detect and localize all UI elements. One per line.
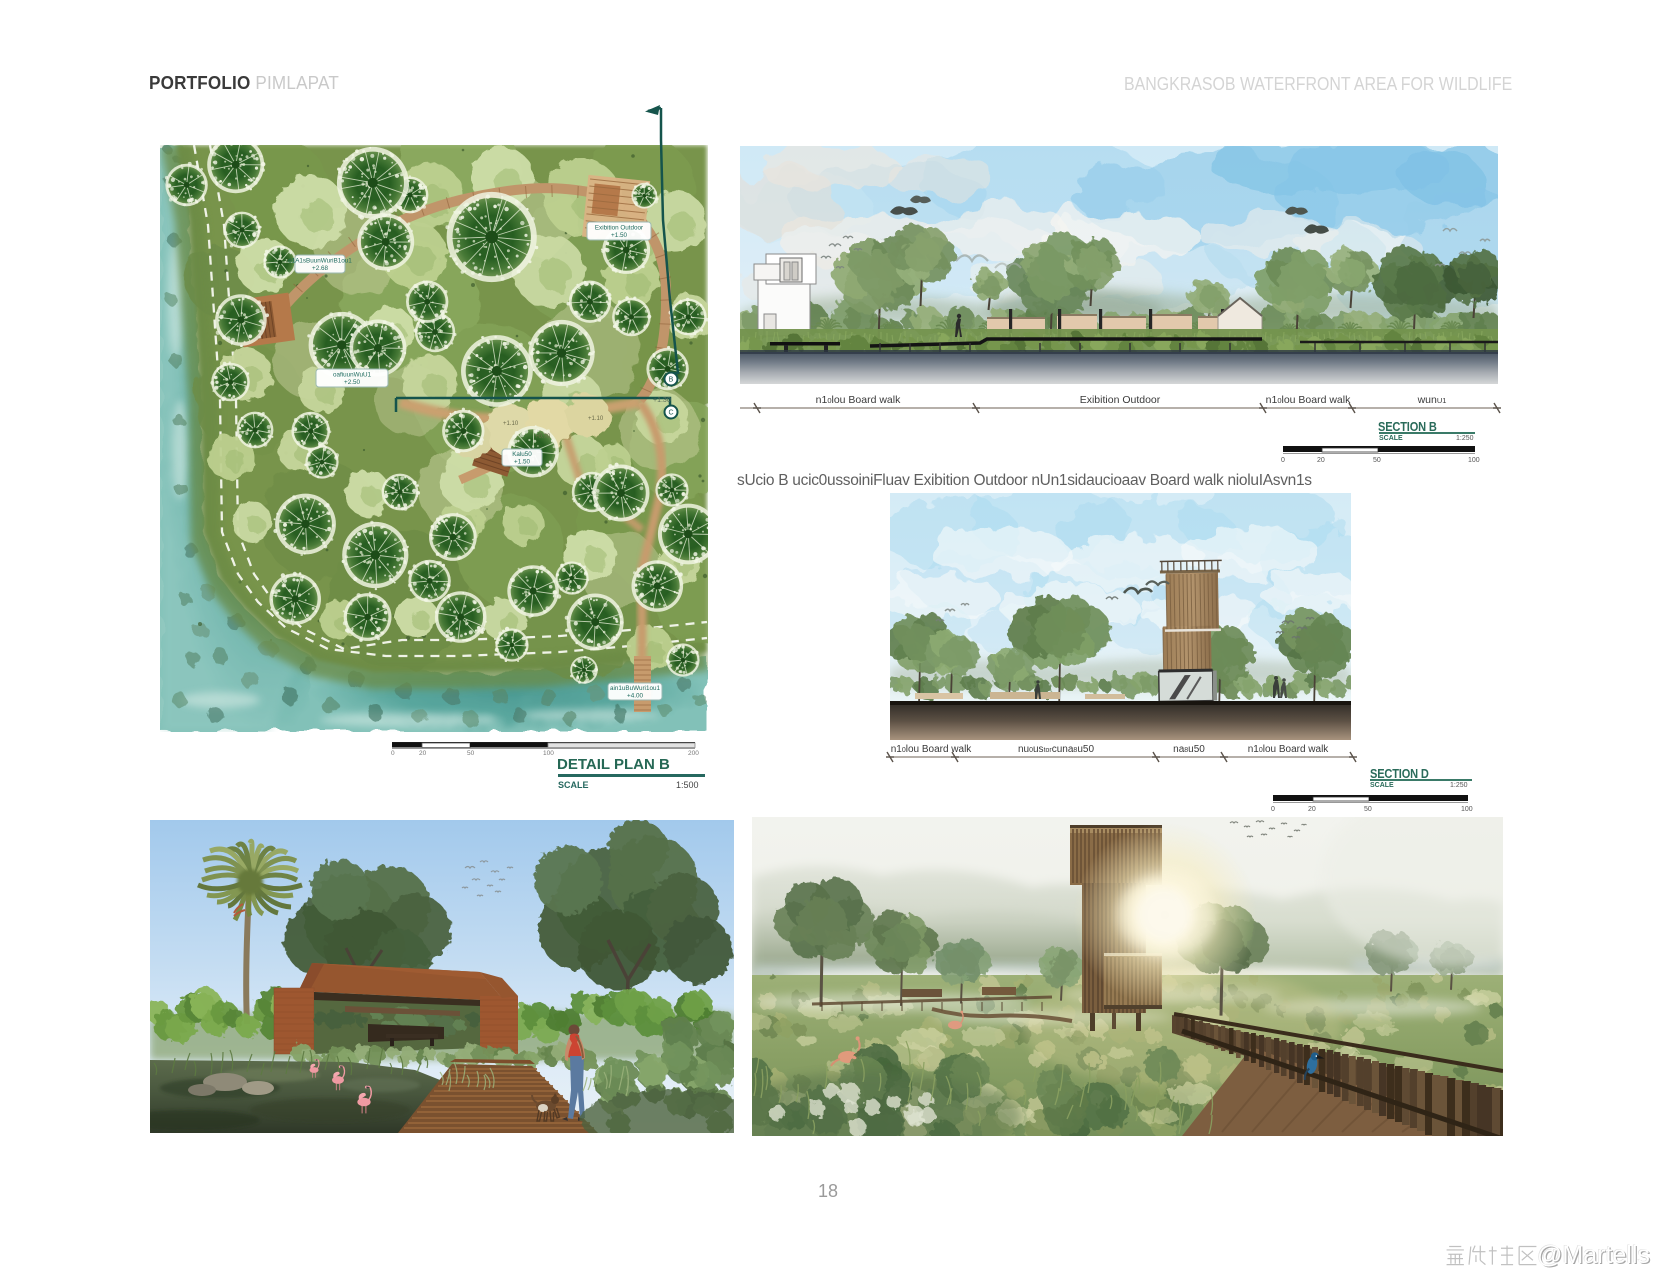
svg-text:+1.10: +1.10 — [588, 416, 604, 422]
svg-text:100: 100 — [1461, 806, 1473, 813]
svg-text:+2.50: +2.50 — [344, 379, 360, 386]
svg-text:+1.50: +1.50 — [514, 459, 530, 466]
svg-text:+0.70: +0.70 — [535, 434, 551, 440]
svg-text:nu0ustorcuna8u50: nu0ustorcuna8u50 — [1018, 744, 1094, 755]
svg-text:0: 0 — [391, 750, 395, 756]
svg-text:+4.00: +4.00 — [627, 693, 643, 700]
svg-text:100: 100 — [543, 750, 554, 756]
svg-text:+1.10: +1.10 — [503, 421, 519, 427]
svg-text:0: 0 — [1281, 457, 1285, 464]
svg-text:100: 100 — [1468, 457, 1480, 464]
svg-text:Exibition Outdoor: Exibition Outdoor — [595, 225, 643, 232]
svg-text:20: 20 — [1308, 806, 1316, 813]
svg-text:50: 50 — [467, 750, 475, 756]
svg-text:50: 50 — [1364, 806, 1372, 813]
svg-text:200: 200 — [688, 750, 699, 756]
svg-text:+1.50: +1.50 — [611, 232, 627, 239]
svg-text:20: 20 — [419, 750, 427, 756]
svg-text:na8u50: na8u50 — [1173, 744, 1205, 755]
svg-text:C: C — [668, 410, 673, 417]
svg-text:n10lou Board walk: n10lou Board walk — [1266, 394, 1351, 406]
svg-text:0: 0 — [1271, 806, 1275, 813]
svg-text:+2.68: +2.68 — [312, 265, 328, 272]
svg-text:oafiuunWuU1: oafiuunWuU1 — [333, 372, 372, 379]
svg-text:o1A1sBuunWuriB1ou1: o1A1sBuunWuriB1ou1 — [288, 258, 352, 265]
svg-text:n10lou Board walk: n10lou Board walk — [891, 744, 973, 755]
svg-text:+1.30: +1.30 — [653, 397, 671, 404]
svg-text:50: 50 — [1373, 457, 1381, 464]
svg-text:B: B — [669, 377, 674, 384]
svg-text:Exibition Outdoor: Exibition Outdoor — [1080, 394, 1161, 406]
svg-text:20: 20 — [1317, 457, 1325, 464]
svg-text:n10lou Board walk: n10lou Board walk — [816, 394, 901, 406]
svg-text:wunU1: wunU1 — [1417, 394, 1447, 406]
svg-text:Kalu50: Kalu50 — [512, 451, 532, 458]
svg-text:ain1uBuWuri1ou1: ain1uBuWuri1ou1 — [610, 685, 660, 692]
svg-text:n10lou Board walk: n10lou Board walk — [1248, 744, 1330, 755]
